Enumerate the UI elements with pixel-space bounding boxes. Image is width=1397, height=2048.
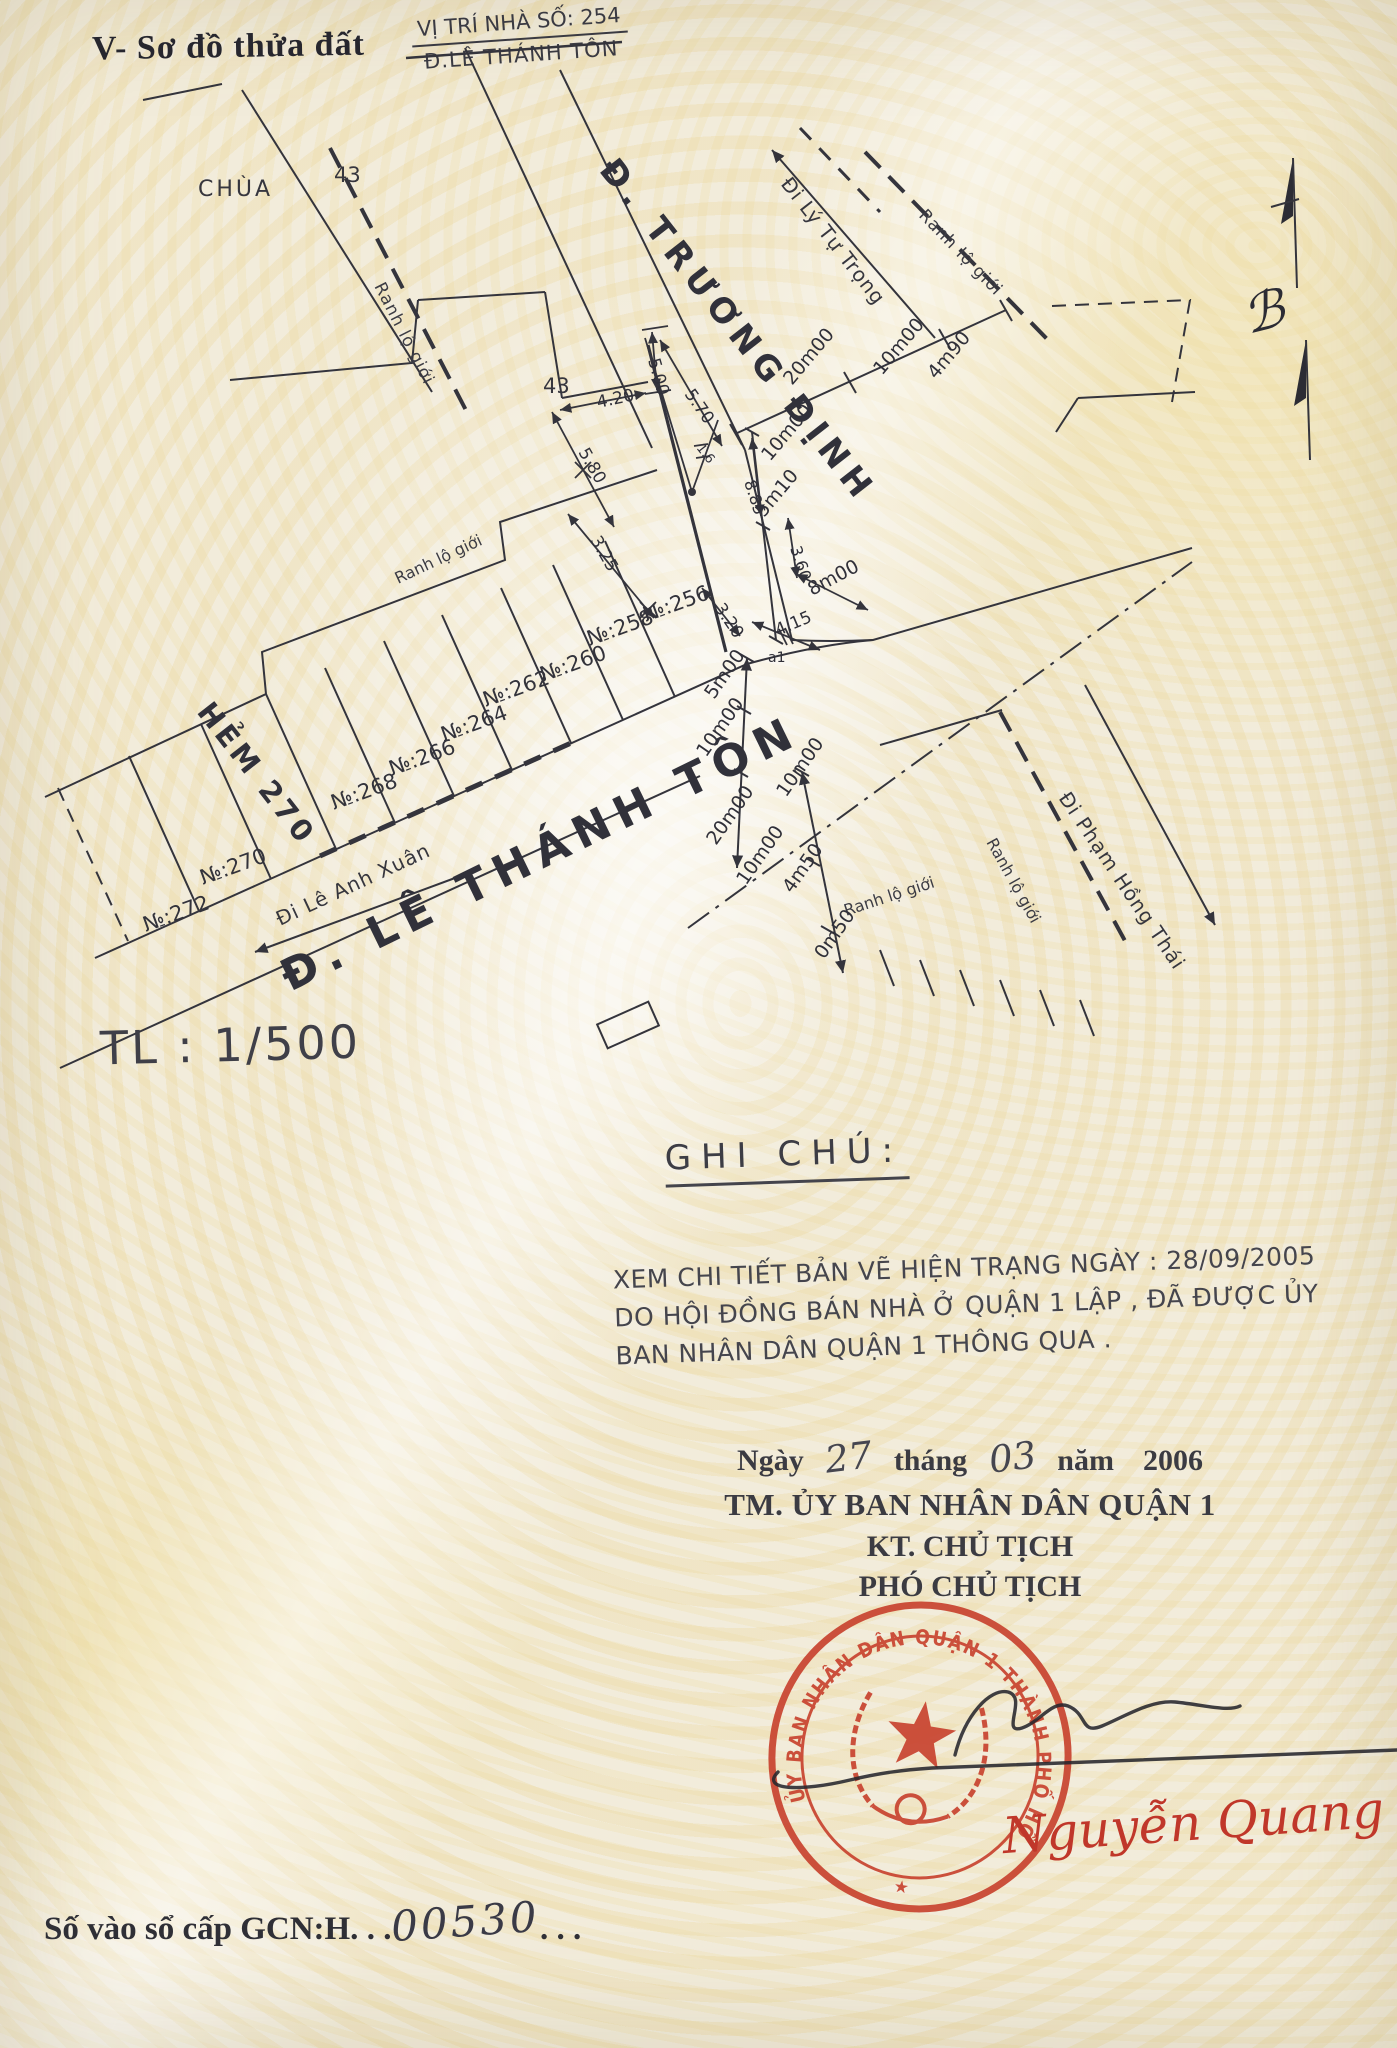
registry-number-handwritten: 00530 <box>390 1892 542 1951</box>
map-label: 43 <box>543 374 570 398</box>
notes-section: GHI CHÚ: XEM CHI TIẾT BẢN VẼ HIỆN TRẠNG … <box>608 1116 1336 1376</box>
map-label: №:268 <box>328 769 401 815</box>
map-label: CHÙA <box>198 176 273 202</box>
map-labels: Đ. TRƯƠNG ĐỊNHĐ. LÊ THÁNH TÔNHẺM 270Đi L… <box>140 151 1294 1002</box>
map-label: №:266 <box>386 735 459 781</box>
date-year: 2006 <box>1143 1444 1203 1477</box>
registry-prefix: Số vào sổ cấp GCN:H. <box>44 1911 358 1947</box>
compass-arrow-icon <box>1281 158 1293 224</box>
authority-line: TM. ỦY BAN NHÂN DÂN QUẬN 1 <box>610 1487 1330 1523</box>
signature-ink <box>774 1692 1397 1788</box>
map-label: 4m50 <box>778 839 827 896</box>
stamp-bottom-star: ★ <box>892 1877 910 1899</box>
map-label: Ranh lộ giới <box>983 835 1045 927</box>
map-label: Đi Phạm Hồng Thái <box>1054 787 1191 974</box>
date-line: Ngày 27 tháng 03 năm 2006 <box>610 1436 1330 1479</box>
date-month-handwritten: 03 <box>986 1433 1038 1481</box>
date-prefix: Ngày <box>737 1444 804 1477</box>
map-label: 0m50 <box>810 905 859 962</box>
registry-dots: . . <box>358 1911 391 1947</box>
map-label: a1 <box>768 650 786 666</box>
compass-arrow-icon <box>1294 340 1306 406</box>
map-label: 3.20 <box>710 600 748 643</box>
chairman-line: KT. CHỦ TỊCH <box>610 1530 1330 1564</box>
date-day-handwritten: 27 <box>823 1433 875 1481</box>
map-label: 5m00 <box>700 645 749 702</box>
scanned-cadastral-document: V- Sơ đồ thửa đất VỊ TRÍ NHÀ SỐ: 254 Đ.L… <box>0 0 1397 2048</box>
stamp-star-emblem <box>883 1697 960 1771</box>
map-label: Đ. LÊ THÁNH TÔN <box>272 704 809 1002</box>
map-label: 5.00 <box>643 356 673 398</box>
map-label: Đi Lý Tự Trọng <box>776 172 891 309</box>
map-label: 43 <box>334 163 361 187</box>
notes-heading: GHI CHÚ: <box>664 1130 910 1187</box>
registry-dots: . . . <box>540 1911 581 1947</box>
scale-label: TL : 1/500 <box>99 1015 361 1076</box>
registry-number-line: Số vào sổ cấp GCN:H. . .00530. . . <box>44 1900 581 1949</box>
map-label: Ranh lộ giới <box>392 531 485 588</box>
map-label: 4.20 <box>595 385 636 412</box>
map-label: 10m00 <box>869 314 929 379</box>
signing-block: Ngày 27 tháng 03 năm 2006 TM. ỦY BAN NHÂ… <box>610 1436 1330 1604</box>
map-label: №:270 <box>197 844 270 890</box>
vice-chairman-line: PHÓ CHỦ TỊCH <box>610 1570 1330 1604</box>
map-label: Ranh lộ giới <box>914 206 1006 300</box>
map-label: 20m00 <box>779 324 839 389</box>
map-label: Đ. TRƯƠNG ĐỊNH <box>591 151 884 511</box>
map-label: HẺM 270 <box>190 694 325 852</box>
map-label: №:272 <box>140 891 213 937</box>
map-label: 4.15 <box>772 607 815 640</box>
date-year-label: năm <box>1057 1444 1114 1477</box>
official-stamp: ỦY BAN NHÂN DÂN QUẬN 1 THÀNH PHỐ HỒ CHÍ … <box>0 0 1314 1928</box>
map-label: 5.70 <box>680 385 718 427</box>
map-label: 10m00 <box>732 821 788 888</box>
map-label: ℬ <box>1237 278 1294 347</box>
map-label: Ranh lộ giới <box>841 873 936 920</box>
date-month-label: tháng <box>894 1444 967 1477</box>
